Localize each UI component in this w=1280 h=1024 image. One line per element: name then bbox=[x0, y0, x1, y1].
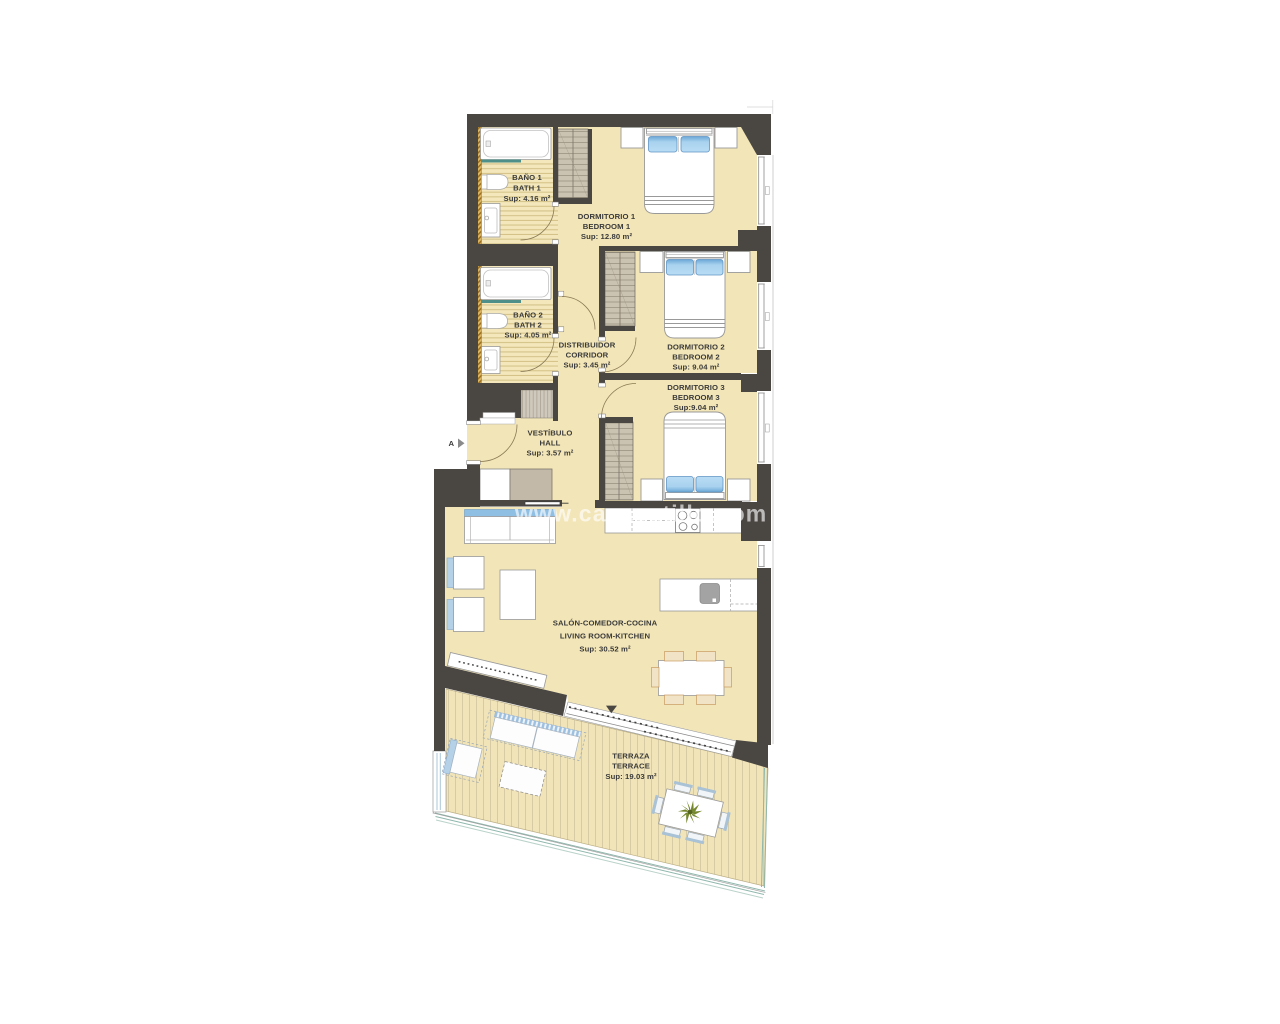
svg-text:BEDROOM 1: BEDROOM 1 bbox=[583, 222, 631, 231]
svg-text:BEDROOM 3: BEDROOM 3 bbox=[672, 393, 719, 402]
svg-text:Sup: 4.16 m²: Sup: 4.16 m² bbox=[504, 194, 551, 203]
svg-text:VESTÍBULO: VESTÍBULO bbox=[528, 429, 573, 438]
svg-text:Sup: 3.45 m²: Sup: 3.45 m² bbox=[564, 361, 611, 370]
svg-text:SALÓN-COMEDOR-COCINA: SALÓN-COMEDOR-COCINA bbox=[553, 619, 658, 628]
svg-text:A: A bbox=[449, 439, 455, 448]
svg-text:DORMITORIO 2: DORMITORIO 2 bbox=[667, 343, 724, 352]
svg-text:Sup: 19.03 m²: Sup: 19.03 m² bbox=[605, 772, 657, 781]
svg-text:Sup: 9.04 m²: Sup: 9.04 m² bbox=[673, 363, 720, 372]
svg-text:Sup: 4.05 m²: Sup: 4.05 m² bbox=[505, 331, 552, 340]
svg-text:DISTRIBUIDOR: DISTRIBUIDOR bbox=[559, 341, 616, 350]
svg-text:BEDROOM 2: BEDROOM 2 bbox=[672, 353, 719, 362]
svg-text:HALL: HALL bbox=[540, 439, 561, 448]
svg-text:CORRIDOR: CORRIDOR bbox=[566, 351, 609, 360]
svg-text:Sup:9.04 m²: Sup:9.04 m² bbox=[674, 403, 719, 412]
svg-text:TERRACE: TERRACE bbox=[612, 762, 650, 771]
svg-text:DORMITORIO 1: DORMITORIO 1 bbox=[578, 212, 636, 221]
svg-text:LIVING ROOM-KITCHEN: LIVING ROOM-KITCHEN bbox=[560, 632, 651, 641]
svg-text:Sup: 12.80 m²: Sup: 12.80 m² bbox=[581, 232, 633, 241]
svg-text:BAÑO 1: BAÑO 1 bbox=[512, 173, 542, 182]
svg-text:Sup: 30.52 m²: Sup: 30.52 m² bbox=[579, 645, 631, 654]
svg-text:BATH 2: BATH 2 bbox=[514, 321, 542, 330]
svg-text:DORMITORIO 3: DORMITORIO 3 bbox=[667, 383, 724, 392]
svg-text:www.casasatillo.com: www.casasatillo.com bbox=[514, 501, 767, 527]
svg-text:BATH 1: BATH 1 bbox=[513, 184, 541, 193]
svg-text:Sup: 3.57 m²: Sup: 3.57 m² bbox=[527, 449, 574, 458]
svg-text:TERRAZA: TERRAZA bbox=[612, 752, 650, 761]
svg-text:BAÑO 2: BAÑO 2 bbox=[513, 311, 543, 320]
